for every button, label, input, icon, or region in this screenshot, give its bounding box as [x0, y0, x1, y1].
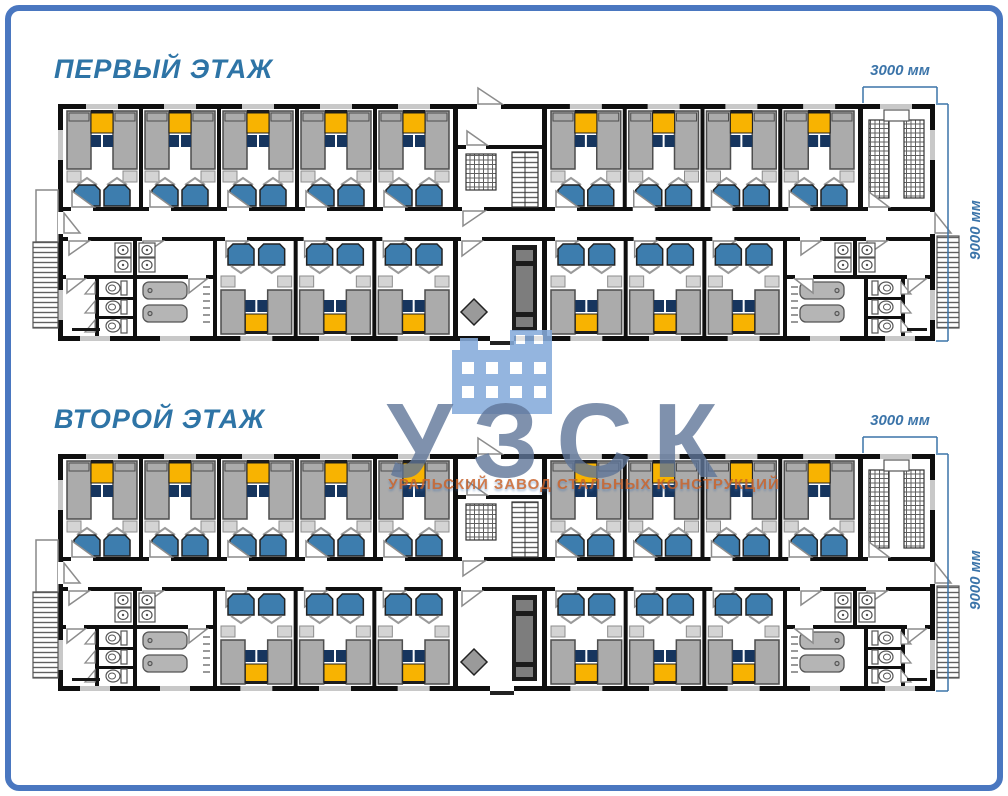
first-floor-title: ПЕРВЫЙ ЭТАЖ — [54, 54, 273, 85]
dimension-brackets — [863, 87, 948, 341]
page: ПЕРВЫЙ ЭТАЖ ВТОРОЙ ЭТАЖ 3000 мм 3000 мм … — [0, 0, 1008, 796]
entrance-module — [458, 88, 542, 226]
technical-room — [461, 587, 537, 695]
bathroom-block-right — [787, 237, 930, 341]
building-walls — [58, 454, 935, 691]
bathroom-block-left — [63, 587, 213, 691]
bathroom-block-right — [787, 587, 930, 691]
entrance-module — [458, 438, 542, 576]
dimension-label-depth-second: 9000 мм — [967, 520, 985, 640]
bedroom-modules — [67, 454, 854, 691]
second-floor-title: ВТОРОЙ ЭТАЖ — [54, 404, 265, 435]
watermark-acronym: УЗСК — [352, 388, 772, 494]
first-floor-plan — [0, 50, 1008, 360]
watermark-subtitle: УРАЛЬСКИЙ ЗАВОД СТАЛЬНЫХ КОНСТРУКЦИЙ — [358, 476, 810, 493]
technical-room — [461, 237, 537, 345]
factory-building-icon — [452, 330, 552, 414]
exterior-stairs — [33, 540, 959, 678]
dimension-label-depth-first: 9000 мм — [967, 170, 985, 290]
bedroom-modules — [67, 104, 854, 341]
exterior-stairs — [33, 190, 959, 328]
watermark: УЗСК УРАЛЬСКИЙ ЗАВОД СТАЛЬНЫХ КОНСТРУКЦИ… — [0, 0, 1008, 796]
dimension-label-width-second: 3000 мм — [858, 412, 942, 429]
page-border-frame — [5, 5, 1003, 791]
stairwell — [868, 454, 924, 561]
stairwell — [868, 104, 924, 211]
dimension-brackets — [863, 437, 948, 691]
second-floor-plan — [0, 400, 1008, 710]
bathroom-block-left — [63, 237, 213, 341]
building-walls — [58, 104, 935, 341]
dimension-label-width-first: 3000 мм — [858, 62, 942, 79]
